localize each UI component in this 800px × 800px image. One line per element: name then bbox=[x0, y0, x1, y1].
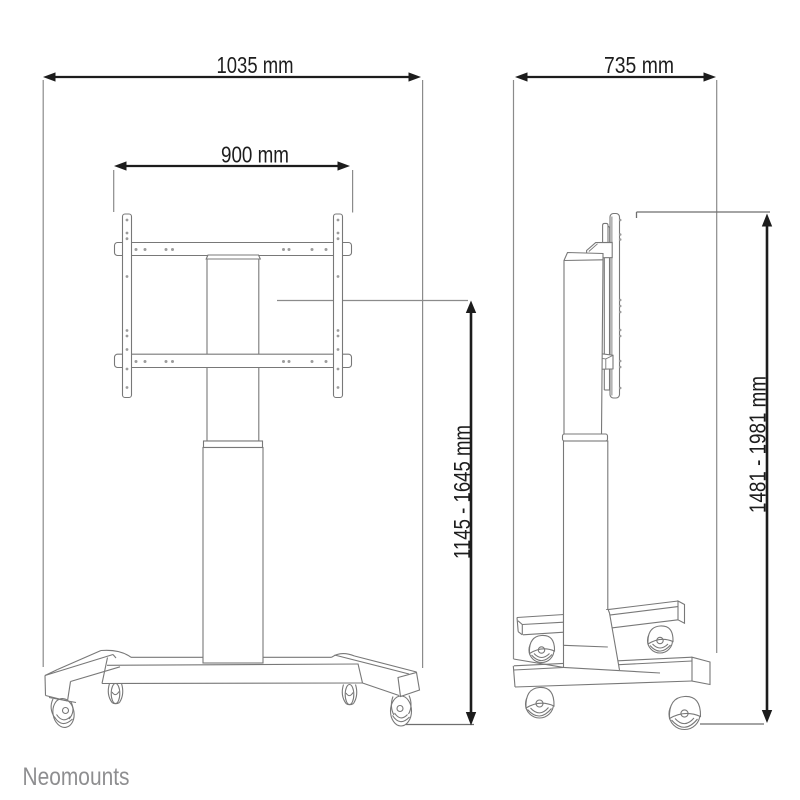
svg-text:1145 - 1645 mm: 1145 - 1645 mm bbox=[449, 425, 475, 559]
svg-text:735 mm: 735 mm bbox=[604, 52, 674, 78]
svg-text:1481 - 1981 mm: 1481 - 1981 mm bbox=[745, 376, 771, 513]
svg-text:1035 mm: 1035 mm bbox=[217, 52, 294, 78]
svg-text:Neomounts: Neomounts bbox=[23, 763, 130, 791]
svg-text:900 mm: 900 mm bbox=[221, 142, 289, 168]
